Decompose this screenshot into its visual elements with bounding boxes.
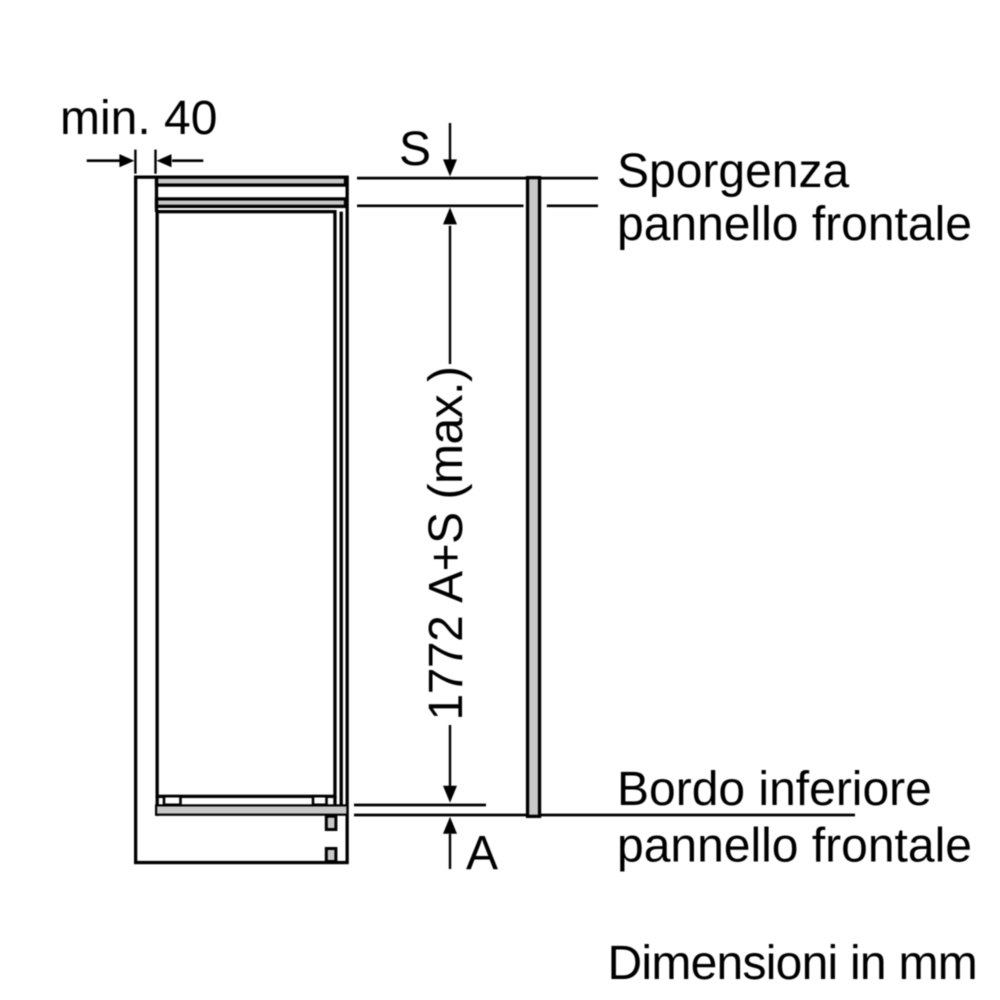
svg-text:pannello frontale: pannello frontale (617, 198, 972, 251)
svg-text:Dimensioni in mm: Dimensioni in mm (608, 937, 977, 990)
svg-text:1772 A+S (max.): 1772 A+S (max.) (420, 367, 473, 721)
svg-text:S: S (399, 123, 431, 176)
svg-text:pannello frontale: pannello frontale (617, 820, 972, 873)
svg-text:Sporgenza: Sporgenza (617, 145, 849, 198)
svg-text:min. 40: min. 40 (60, 92, 217, 145)
svg-text:A: A (466, 827, 498, 880)
svg-text:Bordo inferiore: Bordo inferiore (617, 763, 932, 816)
